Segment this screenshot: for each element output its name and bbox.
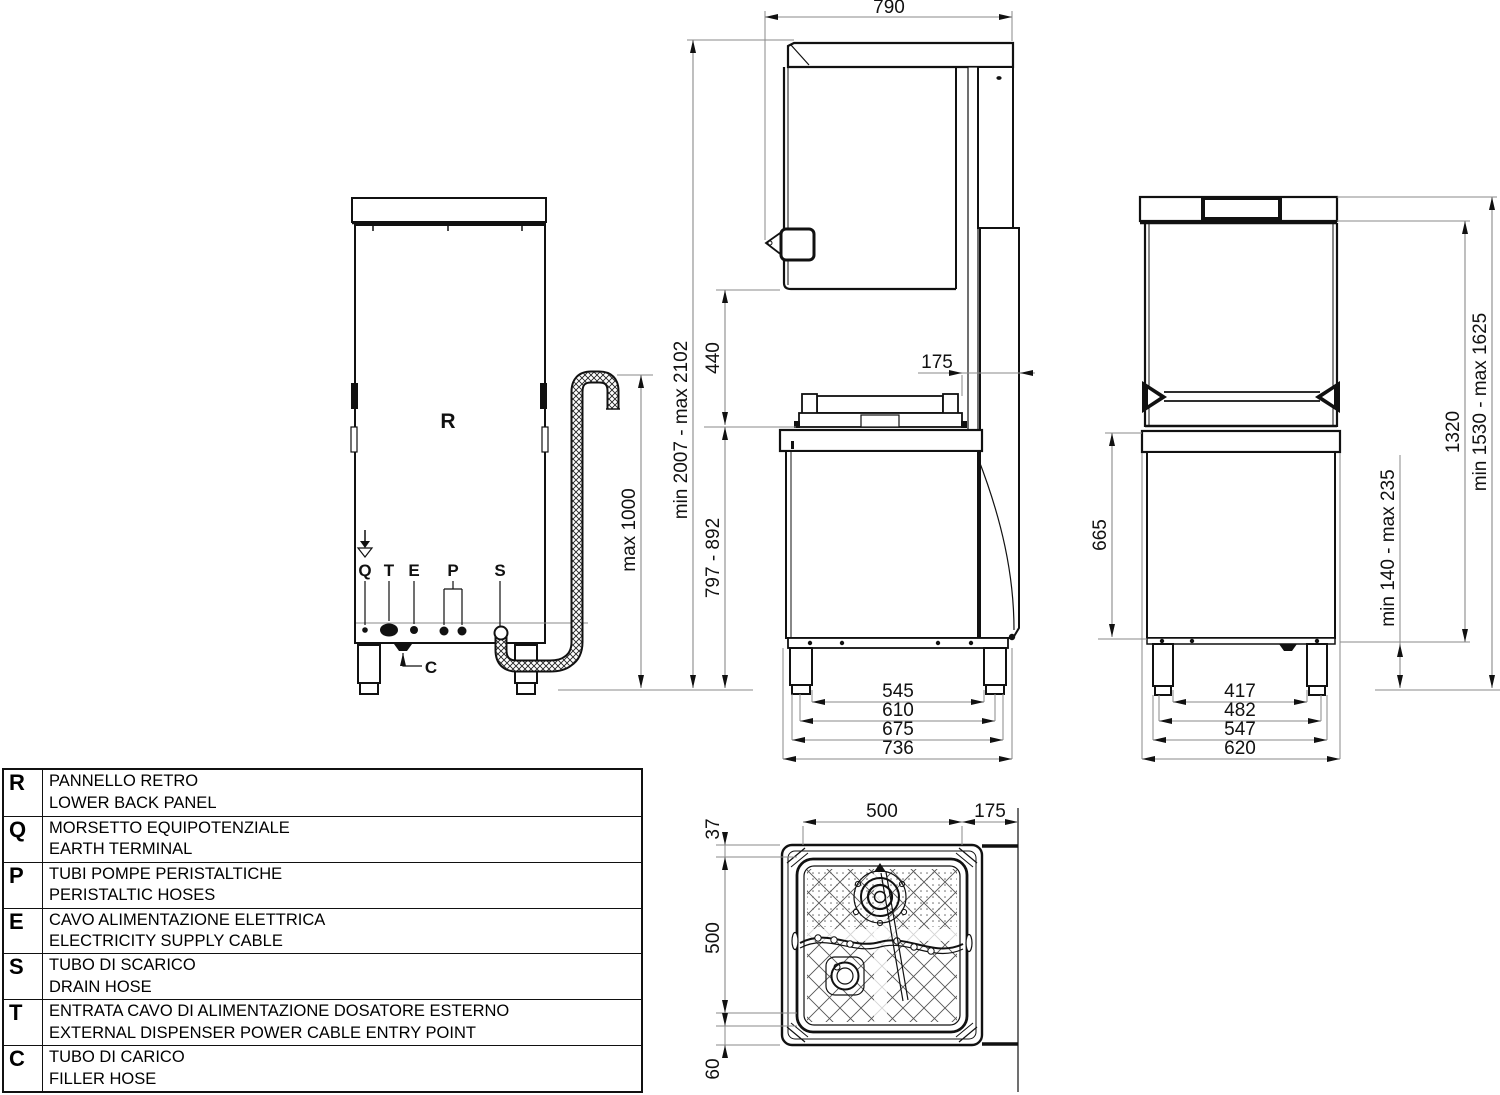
filler-callout-arrow xyxy=(403,653,422,666)
rack-basket xyxy=(794,394,967,428)
legend-key: R xyxy=(4,770,43,816)
front-handle-bar xyxy=(1142,381,1340,413)
legend-table: R PANNELLO RETROLOWER BACK PANEL Q MORSE… xyxy=(2,768,643,1093)
technical-drawing-page: R Q T E P S C xyxy=(0,0,1500,1095)
supply-cable-point xyxy=(410,626,418,634)
dim-front-b4: 620 xyxy=(1224,738,1256,759)
legend-row-e: E CAVO ALIMENTAZIONE ELETTRICAELECTRICIT… xyxy=(4,908,641,954)
legend-text-en: DRAIN HOSE xyxy=(49,977,641,999)
legend-key: C xyxy=(4,1046,43,1091)
legend-text-it: TUBI POMPE PERISTALTICHE xyxy=(49,864,641,886)
label-c: C xyxy=(425,658,437,677)
dim-front-b1: 417 xyxy=(1224,681,1256,702)
top-handle xyxy=(1203,198,1280,219)
side-view xyxy=(766,43,1019,694)
label-s: S xyxy=(494,561,505,580)
dim-total-height: min 2007 - max 2102 xyxy=(671,341,692,520)
peristaltic-hose-point-2 xyxy=(458,627,467,636)
rim-handle-left xyxy=(792,933,798,950)
legend-text-it: CAVO ALIMENTAZIONE ELETTRICA xyxy=(49,910,641,932)
legend-text-en: PERISTALTIC HOSES xyxy=(49,885,641,907)
rear-guide-post xyxy=(968,67,978,430)
dim-top-rear: 175 xyxy=(974,801,1006,822)
dim-hose-height: max 1000 xyxy=(619,488,640,571)
legend-key: Q xyxy=(4,817,43,862)
legend-key: P xyxy=(4,863,43,908)
legend-text-en: EXTERNAL DISPENSER POWER CABLE ENTRY POI… xyxy=(49,1023,641,1045)
rear-column-lower xyxy=(980,228,1019,638)
dispenser-entry-point xyxy=(380,624,398,637)
back-latch-right-upper xyxy=(540,383,547,409)
dim-side-b1: 545 xyxy=(882,681,914,702)
back-top-band xyxy=(352,198,546,222)
legend-row-t: T ENTRATA CAVO DI ALIMENTAZIONE DOSATORE… xyxy=(4,999,641,1045)
dim-side-b4: 736 xyxy=(882,738,914,759)
dim-worktop-height: 797 - 892 xyxy=(703,518,724,598)
legend-text-en: EARTH TERMINAL xyxy=(49,839,641,861)
label-t: T xyxy=(384,561,395,580)
dim-body-height: 665 xyxy=(1090,519,1111,551)
legend-key: T xyxy=(4,1000,43,1045)
dim-front-b2: 482 xyxy=(1224,700,1256,721)
back-latch-right-lower xyxy=(542,427,548,452)
legend-text-en: ELECTRICITY SUPPLY CABLE xyxy=(49,931,641,953)
rear-column-upper xyxy=(978,67,1013,228)
back-view: R Q T E P S C xyxy=(351,198,620,694)
drain-hose-point xyxy=(495,627,508,640)
worktop-ledge xyxy=(780,430,982,451)
label-p: P xyxy=(447,561,458,580)
legend-row-c: C TUBO DI CARICOFILLER HOSE xyxy=(4,1045,641,1091)
legend-text-en: FILLER HOSE xyxy=(49,1069,641,1091)
back-latch-left-upper xyxy=(351,383,358,409)
front-view xyxy=(1140,197,1340,695)
earth-terminal-point xyxy=(362,627,368,633)
side-leg-right xyxy=(984,648,1006,685)
back-leg-left xyxy=(358,645,380,683)
legend-text-it: PANNELLO RETRO xyxy=(49,771,641,793)
side-base xyxy=(788,638,1008,648)
peristaltic-hose-point-1 xyxy=(440,627,449,636)
front-body xyxy=(1147,452,1335,638)
label-q: Q xyxy=(358,561,371,580)
dim-depth: 790 xyxy=(873,0,905,18)
side-leg-left xyxy=(790,648,812,685)
legend-row-s: S TUBO DI SCARICODRAIN HOSE xyxy=(4,953,641,999)
rear-wall xyxy=(982,808,1018,1092)
back-latch-left-lower xyxy=(351,427,357,452)
dim-rear-offset: 175 xyxy=(921,352,953,373)
front-leg-left xyxy=(1153,644,1173,686)
rim-handle-right xyxy=(966,935,972,952)
legend-text-en: LOWER BACK PANEL xyxy=(49,793,641,815)
legend-row-p: P TUBI POMPE PERISTALTICHEPERISTALTIC HO… xyxy=(4,862,641,908)
legend-row-q: Q MORSETTO EQUIPOTENZIALEEARTH TERMINAL xyxy=(4,816,641,862)
legend-text-it: MORSETTO EQUIPOTENZIALE xyxy=(49,818,641,840)
label-e: E xyxy=(408,561,419,580)
dim-top-depth: 500 xyxy=(703,922,724,954)
hood-handle xyxy=(766,229,814,260)
legend-text-it: TUBO DI SCARICO xyxy=(49,955,641,977)
back-panel-label: R xyxy=(440,410,455,433)
side-top-band xyxy=(788,43,1013,67)
dim-front-b3: 547 xyxy=(1224,719,1256,740)
legend-row-r: R PANNELLO RETROLOWER BACK PANEL xyxy=(4,770,641,816)
front-leg-right xyxy=(1307,644,1327,686)
base-knob xyxy=(1009,634,1015,640)
legend-text-it: TUBO DI CARICO xyxy=(49,1047,641,1069)
dim-leg-height: min 140 - max 235 xyxy=(1378,469,1399,626)
side-body xyxy=(786,451,978,638)
dim-side-b2: 610 xyxy=(882,700,914,721)
dim-top-front-offset: 37 xyxy=(703,818,724,839)
dim-upper-height: 1320 xyxy=(1443,411,1464,453)
legend-key: S xyxy=(4,954,43,999)
filler-hose-tab xyxy=(394,644,412,651)
column-screw xyxy=(996,76,1001,80)
legend-key: E xyxy=(4,909,43,954)
legend-text-it: ENTRATA CAVO DI ALIMENTAZIONE DOSATORE E… xyxy=(49,1001,641,1023)
back-panel xyxy=(355,225,545,643)
dim-top-width: 500 xyxy=(866,801,898,822)
dim-side-b3: 675 xyxy=(882,719,914,740)
top-view xyxy=(782,808,1018,1092)
front-ledge xyxy=(1142,431,1340,452)
dim-top-back-offset: 60 xyxy=(703,1058,724,1079)
front-drain-tab xyxy=(1279,644,1297,651)
dim-clearance: 440 xyxy=(703,342,724,374)
dim-front-total: min 1530 - max 1625 xyxy=(1470,313,1491,492)
